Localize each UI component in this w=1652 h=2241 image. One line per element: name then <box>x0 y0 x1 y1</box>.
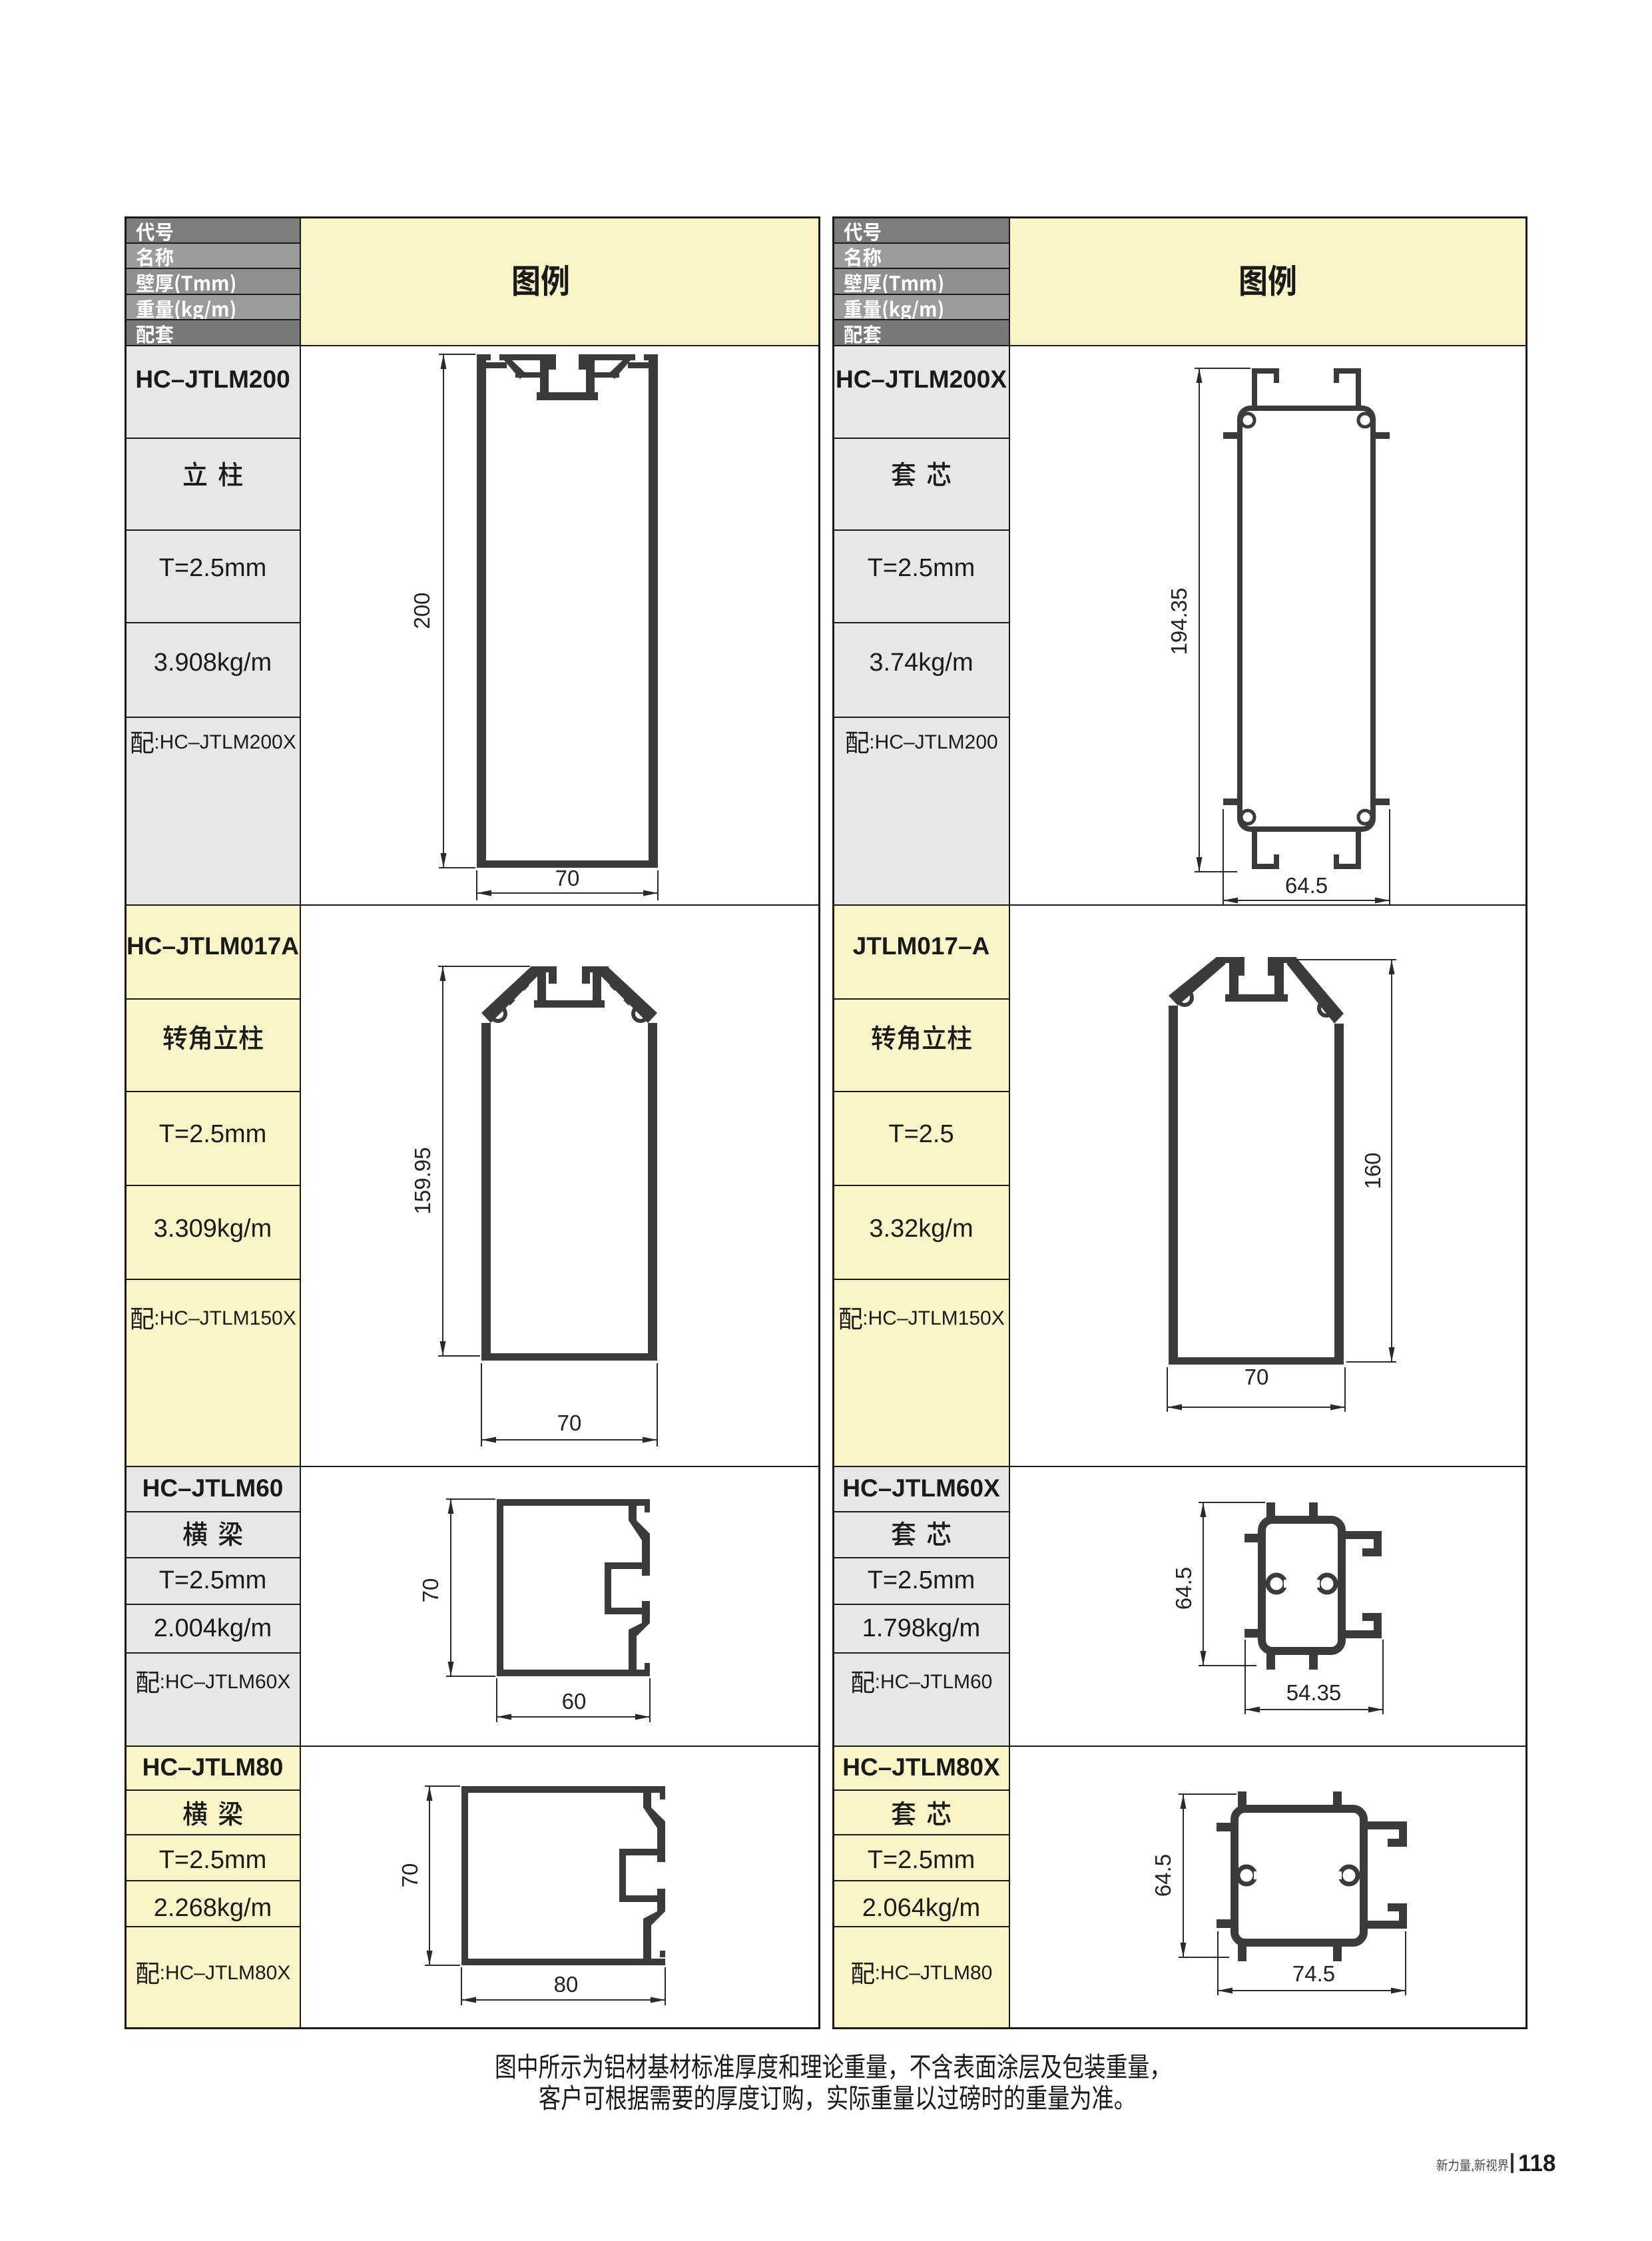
svg-text:159.95: 159.95 <box>410 1147 435 1215</box>
svg-text:70: 70 <box>557 1411 582 1435</box>
svg-text:70: 70 <box>398 1863 422 1888</box>
svg-text:160: 160 <box>1360 1152 1385 1189</box>
svg-text:194.35: 194.35 <box>1167 588 1191 655</box>
svg-text:70: 70 <box>1244 1365 1269 1389</box>
svg-text:70: 70 <box>418 1578 443 1603</box>
svg-text:200: 200 <box>410 592 434 629</box>
svg-text:80: 80 <box>554 1972 579 1997</box>
svg-text:54.35: 54.35 <box>1286 1680 1342 1705</box>
svg-text:64.5: 64.5 <box>1285 873 1328 898</box>
svg-text:74.5: 74.5 <box>1292 1961 1335 1986</box>
svg-text:64.5: 64.5 <box>1151 1854 1175 1897</box>
svg-text:64.5: 64.5 <box>1171 1567 1196 1610</box>
svg-text:70: 70 <box>555 866 580 890</box>
svg-text:60: 60 <box>562 1689 587 1714</box>
